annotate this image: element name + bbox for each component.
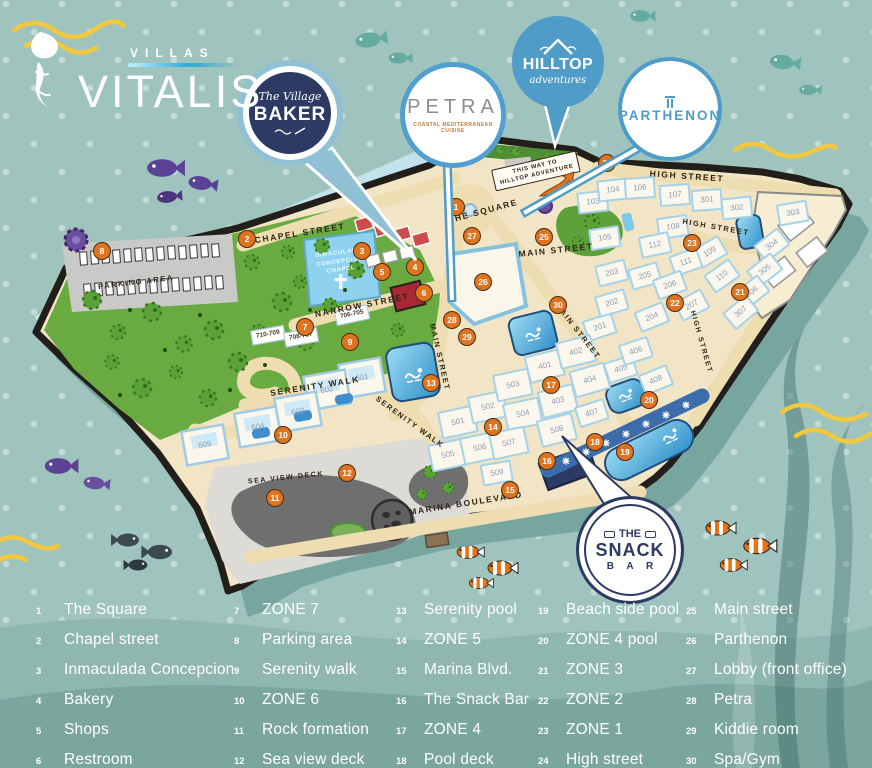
- legend-item: 25Main street: [686, 601, 847, 619]
- marker-19: 19: [616, 443, 634, 461]
- petra-badge-tagline: COASTAL MEDITERRANEAN CUISINE: [405, 122, 501, 134]
- building-204: 204: [633, 301, 670, 333]
- legend-item: 21ZONE 3: [538, 661, 679, 679]
- snack-badge-the: THE: [619, 528, 641, 540]
- legend-item: 20ZONE 4 pool: [538, 631, 679, 649]
- flower-icon: [65, 229, 87, 251]
- grey-fish-icon: [124, 559, 148, 570]
- purple-fish-icon: [147, 159, 185, 177]
- burger-icon: [604, 531, 615, 538]
- marker-9: 9: [341, 333, 359, 351]
- baker-badge-name: BAKER: [254, 104, 327, 126]
- clownfish-icon: [488, 561, 518, 575]
- logo-wave-icon: [26, 28, 70, 112]
- clownfish-icon: [457, 546, 484, 559]
- flower-bed: [538, 199, 552, 213]
- legend-item: 26Parthenon: [686, 631, 847, 649]
- small-pool: [621, 212, 635, 232]
- parking-lot: [62, 234, 238, 312]
- marker-24: 24: [598, 154, 616, 172]
- marker-1: 1: [447, 198, 465, 216]
- logo-villas: VILLAS: [130, 46, 263, 60]
- legend-item: 2Chapel street: [36, 631, 235, 649]
- marker-10: 10: [274, 426, 292, 444]
- building-603: 603: [281, 398, 316, 425]
- marker-4: 4: [406, 258, 424, 276]
- teal-fish-icon: [630, 10, 655, 22]
- building-503: 503: [492, 367, 534, 402]
- marker-12: 12: [338, 464, 356, 482]
- legend-item: 8Parking area: [234, 631, 369, 649]
- legend-item: 10ZONE 6: [234, 691, 369, 709]
- purple-fish-icon: [83, 476, 111, 491]
- hilltop-badge: HILLTOP adventures: [512, 16, 604, 108]
- marker-20: 20: [640, 391, 658, 409]
- marker-26: 26: [474, 273, 492, 291]
- legend-item: 27Lobby (front office): [686, 661, 847, 679]
- marker-25: 25: [535, 228, 553, 246]
- petra-badge-name: PETRA: [407, 96, 499, 119]
- wheat-knife-icon: [273, 126, 307, 136]
- legend-item: 16The Snack Bar: [396, 691, 529, 709]
- marker-17: 17: [542, 376, 560, 394]
- clownfish-icon: [720, 559, 747, 572]
- marker-5: 5: [373, 263, 391, 281]
- petra-badge: PETRA COASTAL MEDITERRANEAN CUISINE: [400, 62, 506, 168]
- marker-14: 14: [484, 418, 502, 436]
- marker-30: 30: [549, 296, 567, 314]
- building-301: 301: [691, 188, 724, 212]
- street-label-chapel: CHAPEL STREET: [254, 221, 346, 245]
- legend-item: 28Petra: [686, 691, 847, 709]
- building-604: 604: [241, 413, 276, 440]
- marker-13: 13: [422, 374, 440, 392]
- marker-23: 23: [683, 234, 701, 252]
- snack-bar-badge: THE SNACK B A R: [576, 496, 684, 604]
- legend-column-4: 19Beach side pool 20ZONE 4 pool 21ZONE 3…: [538, 601, 679, 768]
- parthenon-badge: PARTHENON: [618, 57, 722, 161]
- logo-vitalis: VITALIS: [78, 69, 263, 114]
- legend-column-2: 7ZONE 7 8Parking area 9Serenity walk 10Z…: [234, 601, 369, 768]
- marker-21: 21: [731, 283, 749, 301]
- marker-7: 7: [296, 318, 314, 336]
- legend-item: 15Marina Blvd.: [396, 661, 529, 679]
- resort-map-poster: CHAPEL STREET NARROW STREET SERENITY WAL…: [0, 0, 872, 768]
- marker-11: 11: [266, 489, 284, 507]
- clownfish-icon: [469, 577, 493, 588]
- legend-item: 19Beach side pool: [538, 601, 679, 619]
- building-406: 406: [618, 336, 655, 367]
- legend-item: 30Spa/Gym: [686, 751, 847, 768]
- legend-item: 1The Square: [36, 601, 235, 619]
- marker-27: 27: [463, 227, 481, 245]
- street-label-main-1: MAIN STREET: [518, 241, 594, 259]
- purple-fish-icon: [188, 175, 219, 193]
- parthenon-badge-name: PARTHENON: [619, 108, 722, 123]
- building-203: 203: [594, 259, 630, 288]
- purple-fish-icon: [157, 190, 183, 204]
- pebbles: [382, 511, 401, 530]
- purple-fish-icon: [45, 458, 79, 474]
- grey-fish-icon: [141, 545, 172, 559]
- zone7-house: 710-709: [250, 325, 286, 345]
- clownfish-icon: [706, 521, 736, 535]
- legend-item: 17ZONE 4: [396, 721, 529, 739]
- street-label-high-3: HIGH STREET: [689, 310, 714, 374]
- column-icon: [664, 96, 676, 108]
- teal-fish-icon: [354, 30, 388, 49]
- marker-16: 16: [538, 452, 556, 470]
- turtle-pond: [331, 523, 365, 541]
- petra-badge-stick-inner: [447, 155, 452, 300]
- deck-crate: [425, 533, 448, 548]
- legend-item: 29Kiddie room: [686, 721, 847, 739]
- street-label-serenity-2: SERENITY WALK: [374, 394, 446, 450]
- drink-icon: [645, 531, 656, 538]
- marker-29: 29: [458, 328, 476, 346]
- hilltop-badge-name: HILLTOP: [523, 56, 593, 74]
- serenity-pool: [385, 341, 442, 403]
- snack-badge-name: SNACK: [595, 540, 664, 561]
- marker-28: 28: [443, 311, 461, 329]
- marker-22: 22: [666, 294, 684, 312]
- clownfish-icon: [744, 538, 777, 553]
- building-112: 112: [638, 231, 673, 259]
- marker-6: 6: [415, 284, 433, 302]
- legend-item: 9Serenity walk: [234, 661, 369, 679]
- rock-circle: [372, 500, 412, 540]
- building-107: 107: [659, 183, 692, 207]
- building-303: 303: [776, 199, 811, 226]
- grey-fish-icon: [111, 534, 139, 547]
- legend-item: 18Pool deck: [396, 751, 529, 768]
- teal-fish-icon: [769, 54, 801, 71]
- rock-formation: [231, 475, 415, 557]
- marker-15: 15: [501, 481, 519, 499]
- teal-fish-icon: [799, 85, 821, 95]
- baker-badge-script: The Village: [259, 90, 322, 103]
- marker-2: 2: [238, 230, 256, 248]
- marker-3: 3: [353, 242, 371, 260]
- legend-item: 5Shops: [36, 721, 235, 739]
- legend-item: 13Serenity pool: [396, 601, 529, 619]
- building-407: 407: [574, 398, 611, 429]
- cross-icon: [335, 274, 347, 289]
- street-label-seaview: SEA VIEW DECK: [248, 471, 325, 486]
- legend-column-1: 1The Square 2Chapel street 3Inmaculada C…: [36, 601, 235, 768]
- street-label-high-1: HIGH STREET: [649, 168, 724, 183]
- legend-item: 6Restroom: [36, 751, 235, 768]
- mountain-icon: [538, 38, 578, 56]
- villas-vitalis-logo: VILLAS VITALIS: [26, 28, 263, 114]
- beach-side-pool: [600, 415, 699, 486]
- legend-item: 11Rock formation: [234, 721, 369, 739]
- street-label-parking: PARKING AREA: [98, 273, 175, 291]
- legend-item: 24High street: [538, 751, 679, 768]
- marker-8: 8: [93, 242, 111, 260]
- legend-item: 22ZONE 2: [538, 691, 679, 709]
- legend-column-5: 25Main street 26Parthenon 27Lobby (front…: [686, 601, 847, 768]
- legend-item: 3Inmaculada Concepcion: [36, 661, 235, 679]
- hilltop-badge-sub: adventures: [530, 75, 587, 86]
- building-106: 106: [624, 176, 657, 200]
- legend-column-3: 13Serenity pool 14ZONE 5 15Marina Blvd. …: [396, 601, 529, 768]
- legend-item: 12Sea view deck: [234, 751, 369, 768]
- building-202: 202: [594, 288, 630, 318]
- marker-18: 18: [586, 433, 604, 451]
- legend-item: 4Bakery: [36, 691, 235, 709]
- snack-badge-bar: B A R: [607, 561, 658, 572]
- petra-badge-stick: [447, 155, 452, 302]
- legend-item: 7ZONE 7: [234, 601, 369, 619]
- legend-item: 23ZONE 1: [538, 721, 679, 739]
- legend-item: 14ZONE 5: [396, 631, 529, 649]
- building-302: 302: [720, 195, 753, 220]
- building-408: 408: [637, 364, 674, 396]
- building-605: 605: [188, 431, 223, 458]
